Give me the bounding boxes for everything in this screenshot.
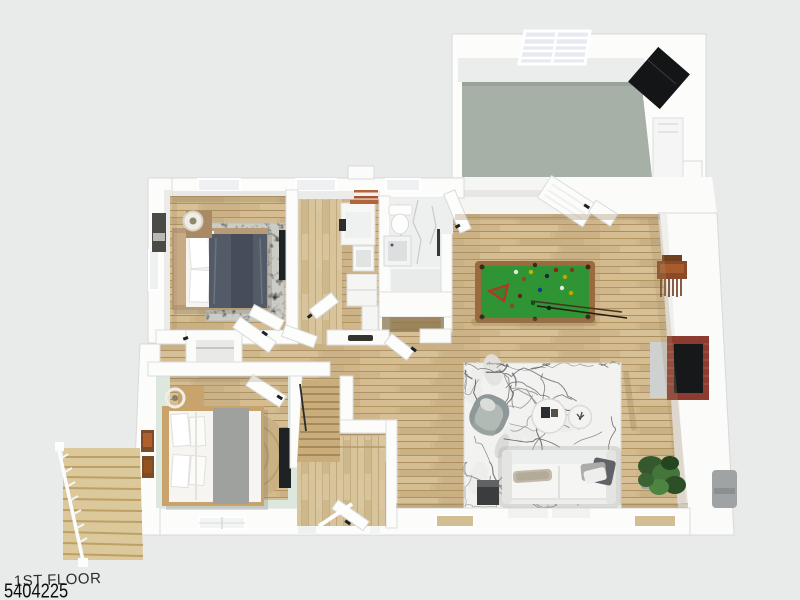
svg-text:5404225: 5404225 bbox=[4, 579, 68, 600]
